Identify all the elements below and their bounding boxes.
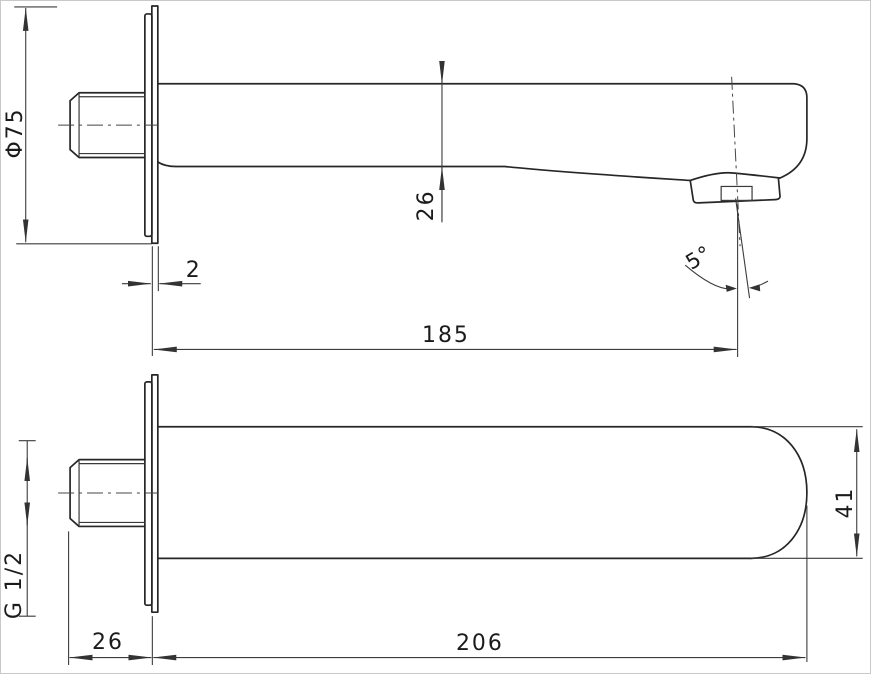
side-spout-top-contour bbox=[158, 84, 807, 178]
side-flange-plate bbox=[152, 6, 158, 243]
flange-diameter-label: Φ75 bbox=[3, 107, 28, 158]
wall-spout-technical-drawing: Φ75 2 26 185 5° bbox=[1, 1, 870, 673]
plan-view bbox=[58, 375, 807, 612]
flange-thickness-label: 2 bbox=[186, 258, 202, 283]
angle-arrow-left bbox=[726, 285, 737, 292]
side-view-dimensions: Φ75 2 26 185 5° bbox=[3, 7, 768, 357]
spout-height-label: 26 bbox=[414, 189, 439, 221]
overall-length-label: 206 bbox=[456, 631, 504, 656]
technical-drawing-canvas: Φ75 2 26 185 5° bbox=[0, 0, 871, 674]
side-aerator-housing bbox=[690, 179, 780, 203]
spout-width-label: 41 bbox=[833, 487, 858, 519]
plan-view-dimensions: 41 206 26 G 1/2 bbox=[2, 427, 862, 665]
thread-size-label: G 1/2 bbox=[2, 550, 27, 619]
side-aerator-ridge bbox=[690, 173, 780, 181]
projection-length-label: 185 bbox=[422, 323, 470, 348]
side-spout-underside bbox=[158, 162, 690, 180]
outlet-angle-label: 5° bbox=[681, 241, 715, 275]
thread-length-label: 26 bbox=[92, 630, 124, 655]
side-aerator-insert bbox=[721, 186, 752, 200]
plan-spout-rounded-end bbox=[751, 427, 807, 559]
angle-arrow-right bbox=[749, 284, 760, 291]
